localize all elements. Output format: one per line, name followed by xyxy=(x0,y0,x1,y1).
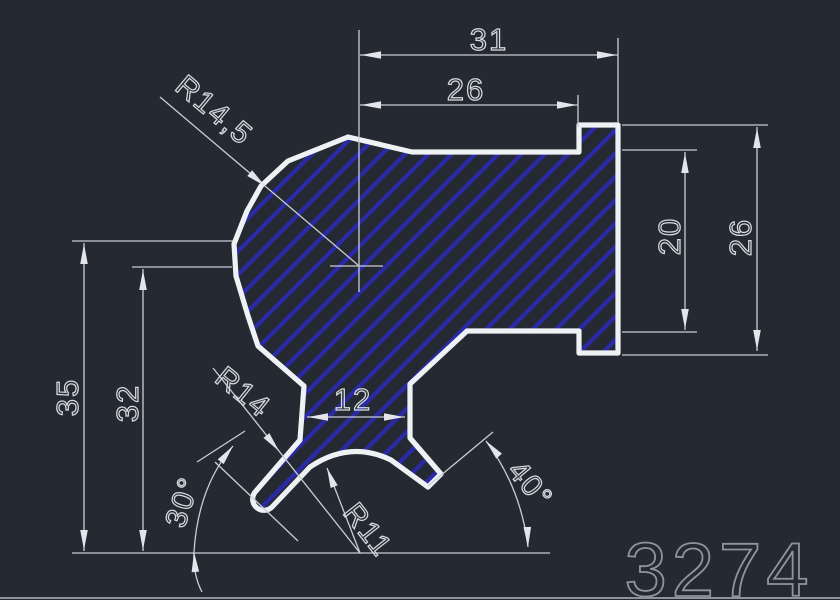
dim-inner-height: 20 xyxy=(652,152,689,330)
dim-overall-height: 35 xyxy=(50,243,88,551)
arrow-down-icon xyxy=(80,530,88,550)
arrow-leader-icon xyxy=(323,467,337,488)
dim-text-26-right: 26 xyxy=(723,218,758,256)
dim-text-31: 31 xyxy=(470,22,508,57)
cad-drawing: 31 26 20 26 35 32 12 xyxy=(0,0,840,600)
arrow-left-icon xyxy=(361,51,381,59)
arrow-right-icon xyxy=(557,101,577,109)
dim-text-26-top: 26 xyxy=(447,72,485,107)
dim-text-12: 12 xyxy=(334,382,372,417)
dim-overall-width: 31 xyxy=(360,22,618,59)
dim-right-angle: 40° xyxy=(428,432,559,547)
dim-flange-height: 26 xyxy=(723,127,761,351)
arrow-down-icon xyxy=(139,530,147,550)
dim-text-20: 20 xyxy=(652,217,687,255)
dim-bottom-radius: R11 xyxy=(323,467,398,564)
part-section xyxy=(234,125,618,510)
arrow-arc-icon xyxy=(190,552,199,572)
arrow-up-icon xyxy=(753,128,761,148)
arrow-up-icon xyxy=(139,270,147,290)
cad-drawing-canvas: 31 26 20 26 35 32 12 xyxy=(0,0,840,600)
dim-text-40deg: 40° xyxy=(501,455,559,516)
arrow-right-icon xyxy=(597,51,617,59)
arrow-down-icon xyxy=(753,330,761,350)
dim-text-32: 32 xyxy=(110,384,145,422)
dim-text-r14: R14 xyxy=(209,361,277,425)
arrow-left-icon xyxy=(361,101,381,109)
dim-text-35: 35 xyxy=(50,378,85,416)
drawing-number: 3274 xyxy=(624,528,813,600)
dim-center-height: 32 xyxy=(110,269,147,551)
dim-left-angle: 30° xyxy=(159,431,298,592)
dim-body-width: 26 xyxy=(360,72,578,109)
arrow-up-icon xyxy=(80,244,88,264)
arrow-arc-icon xyxy=(524,527,532,547)
arrow-up-icon xyxy=(681,153,689,173)
dim-text-r14-5: R14,5 xyxy=(169,69,259,152)
part-outline xyxy=(234,125,618,510)
arrow-down-icon xyxy=(681,309,689,329)
dim-text-30deg: 30° xyxy=(159,473,206,532)
